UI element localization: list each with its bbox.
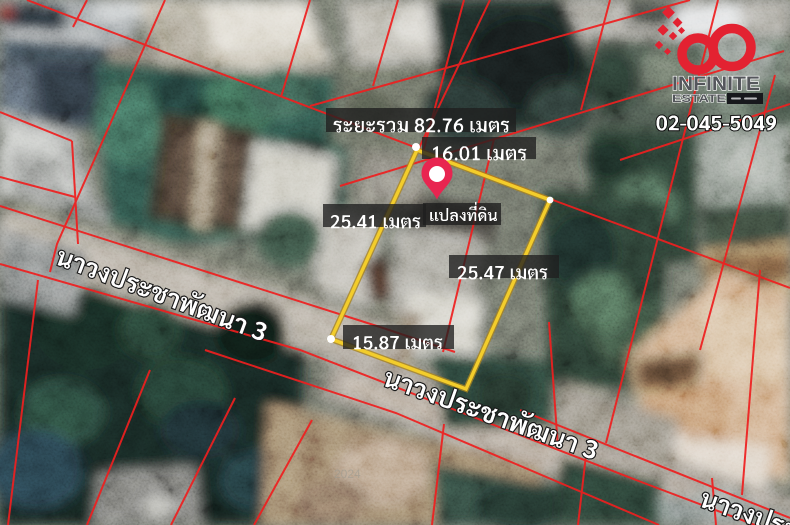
svg-text:INFINITE: INFINITE: [672, 74, 760, 95]
svg-text:ESTATE: ESTATE: [672, 93, 726, 105]
svg-text:2024: 2024: [334, 467, 361, 481]
